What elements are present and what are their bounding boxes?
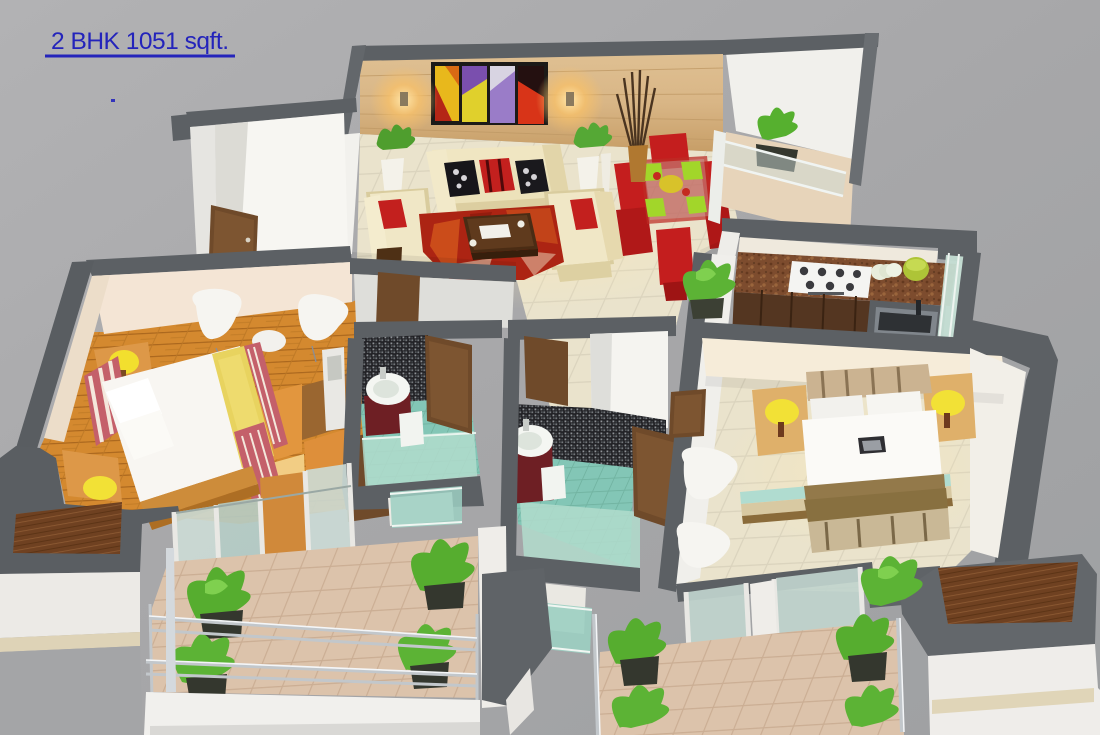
- svg-text:2 BHK 1051 sqft.: 2 BHK 1051 sqft.: [51, 28, 229, 55]
